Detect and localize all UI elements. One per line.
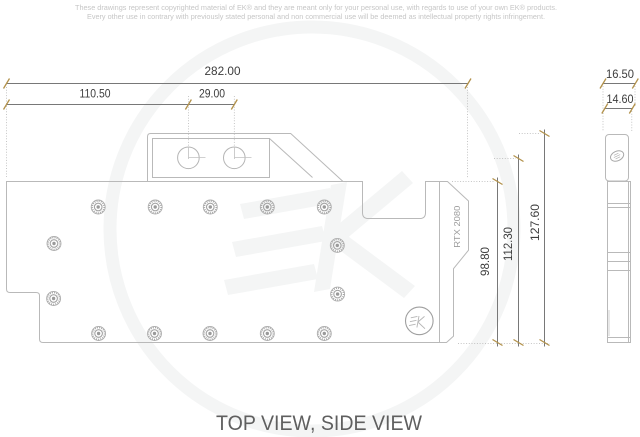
svg-text:RTX 2080: RTX 2080 (452, 205, 462, 247)
svg-text:29.00: 29.00 (199, 87, 225, 101)
svg-text:Every other use in contrary wi: Every other use in contrary with previou… (87, 12, 545, 21)
svg-text:127.60: 127.60 (528, 204, 542, 241)
svg-text:282.00: 282.00 (205, 64, 241, 78)
svg-text:16.50: 16.50 (606, 67, 634, 81)
svg-text:14.60: 14.60 (607, 92, 634, 106)
svg-text:98.80: 98.80 (478, 247, 492, 276)
svg-text:These drawings represent copyr: These drawings represent copyrighted mat… (75, 3, 557, 12)
svg-text:110.50: 110.50 (80, 87, 111, 101)
svg-text:TOP VIEW, SIDE VIEW: TOP VIEW, SIDE VIEW (216, 411, 423, 435)
svg-text:112.30: 112.30 (501, 227, 515, 261)
